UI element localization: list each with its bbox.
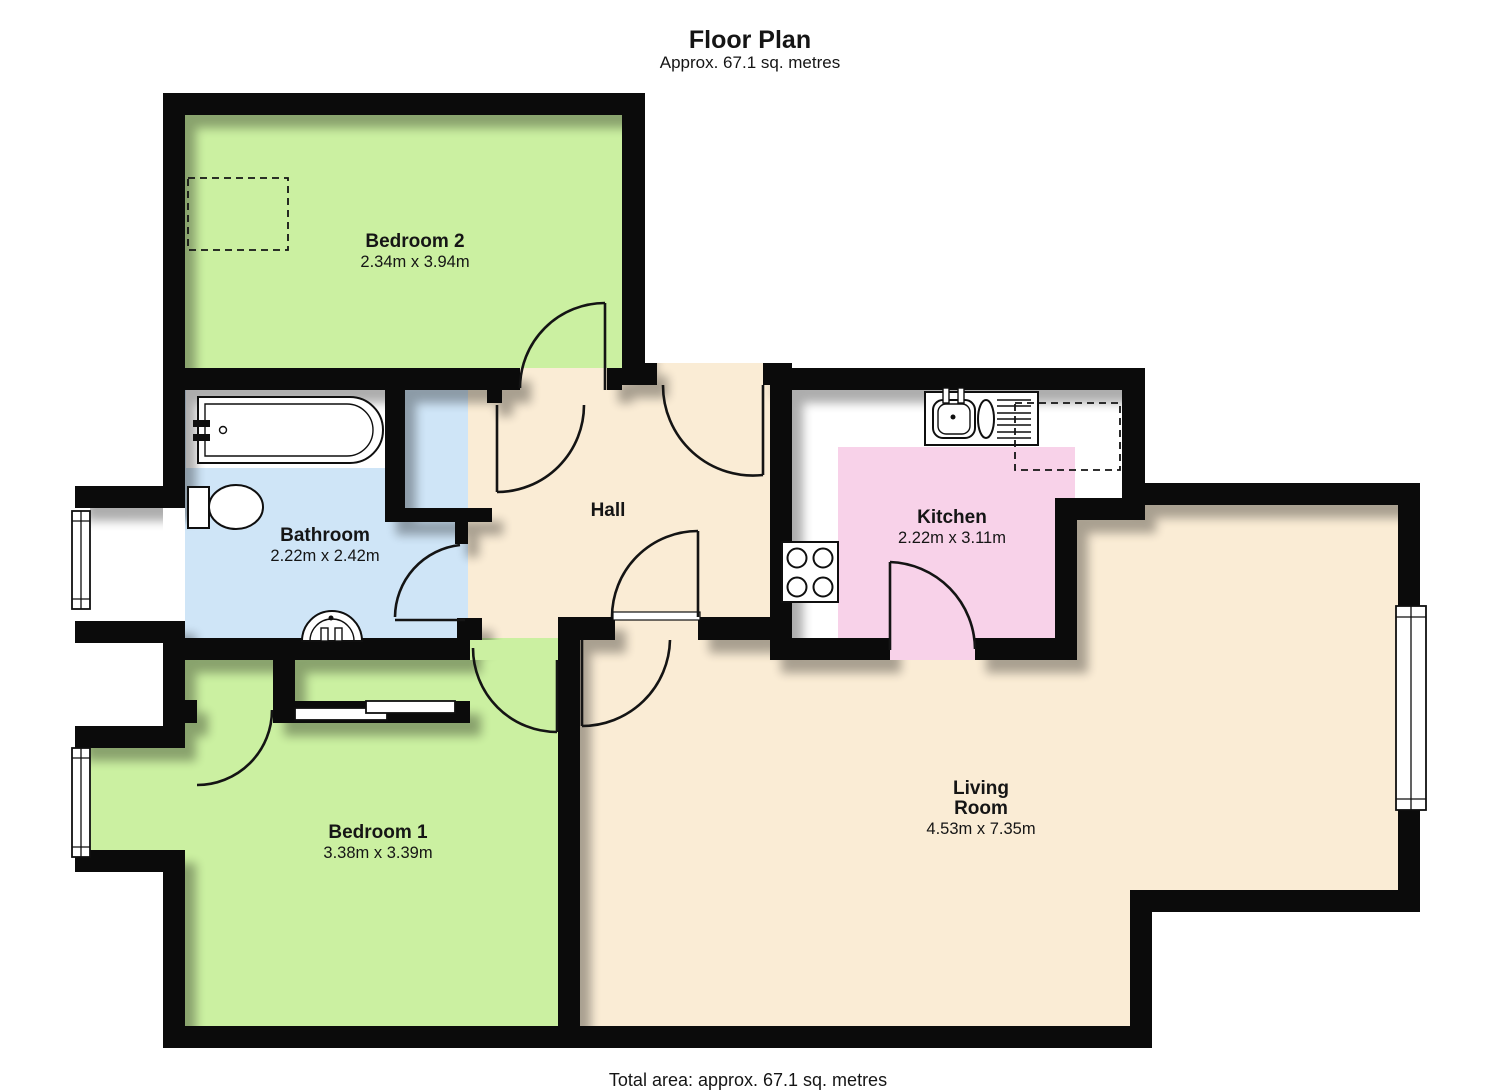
- bath-tap: [193, 434, 210, 441]
- bedroom1-bay-floor: [90, 748, 185, 855]
- living-room-window-icon: [1396, 606, 1426, 810]
- room-label-living-line2: Room: [954, 798, 1008, 819]
- bedroom2-door-threshold: [520, 368, 607, 392]
- bathroom-bay-floor: [90, 508, 163, 621]
- room-label-kitchen: Kitchen: [917, 507, 987, 528]
- room-dims-bathroom: 2.22m x 2.42m: [270, 547, 379, 565]
- room-dims-living: 4.53m x 7.35m: [926, 820, 1035, 838]
- room-label-bedroom1: Bedroom 1: [328, 822, 428, 843]
- toilet-icon: [188, 485, 263, 529]
- bedroom1-door-threshold: [470, 638, 558, 660]
- bathtub-icon: [193, 397, 383, 463]
- bedroom1-bay-window-icon: [72, 748, 90, 857]
- floors: [90, 115, 1398, 1026]
- kitchen-sink-icon: [925, 388, 1038, 445]
- room-dims-bedroom1: 3.38m x 3.39m: [323, 844, 432, 862]
- kitchen-door-threshold: [890, 638, 975, 660]
- bath-tap: [193, 420, 210, 427]
- floor-plan-page: Floor Plan Approx. 67.1 sq. metres Total…: [0, 0, 1500, 1091]
- bathroom-bay-window-icon: [72, 511, 90, 609]
- room-dims-bedroom2: 2.34m x 3.94m: [360, 253, 469, 271]
- floor-plan-canvas: Floor Plan Approx. 67.1 sq. metres Total…: [0, 0, 1500, 1091]
- room-label-bedroom2: Bedroom 2: [365, 231, 464, 252]
- room-label-hall: Hall: [591, 500, 626, 521]
- hall-living-opening: [613, 612, 700, 620]
- total-area-note: Total area: approx. 67.1 sq. metres: [609, 1070, 887, 1090]
- room-dims-kitchen: 2.22m x 3.11m: [898, 529, 1006, 547]
- hob-icon: [782, 542, 838, 602]
- room-label-bathroom: Bathroom: [280, 525, 370, 546]
- draining-board-icon: [997, 400, 1031, 438]
- room-label-living-line1: Living: [953, 778, 1009, 799]
- page-subtitle: Approx. 67.1 sq. metres: [660, 53, 840, 72]
- page-title: Floor Plan: [689, 26, 811, 54]
